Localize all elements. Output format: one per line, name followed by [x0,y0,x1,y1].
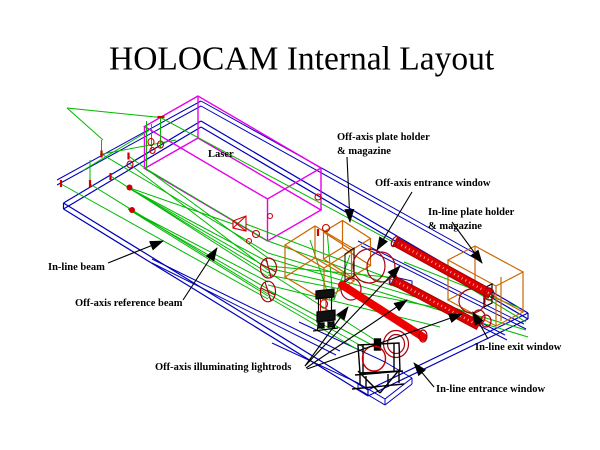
svg-text:Off-axis reference beam: Off-axis reference beam [75,298,183,309]
svg-text:Off-axis entrance window: Off-axis entrance window [375,178,491,189]
svg-text:Off-axis plate holder: Off-axis plate holder [337,132,430,143]
svg-text:In-line beam: In-line beam [48,262,105,273]
svg-text:Off-axis illuminating lightro: Off-axis illuminating lightrods [155,362,291,373]
svg-text:In-line entrance window: In-line entrance window [436,384,546,395]
svg-text:In-line exit window: In-line exit window [475,342,562,353]
svg-text:HOLOCAM Internal Layout: HOLOCAM Internal Layout [109,41,495,78]
svg-text:In-line plate holder: In-line plate holder [428,207,515,218]
svg-text:& magazine: & magazine [428,221,482,232]
svg-text:& magazine: & magazine [337,146,391,157]
